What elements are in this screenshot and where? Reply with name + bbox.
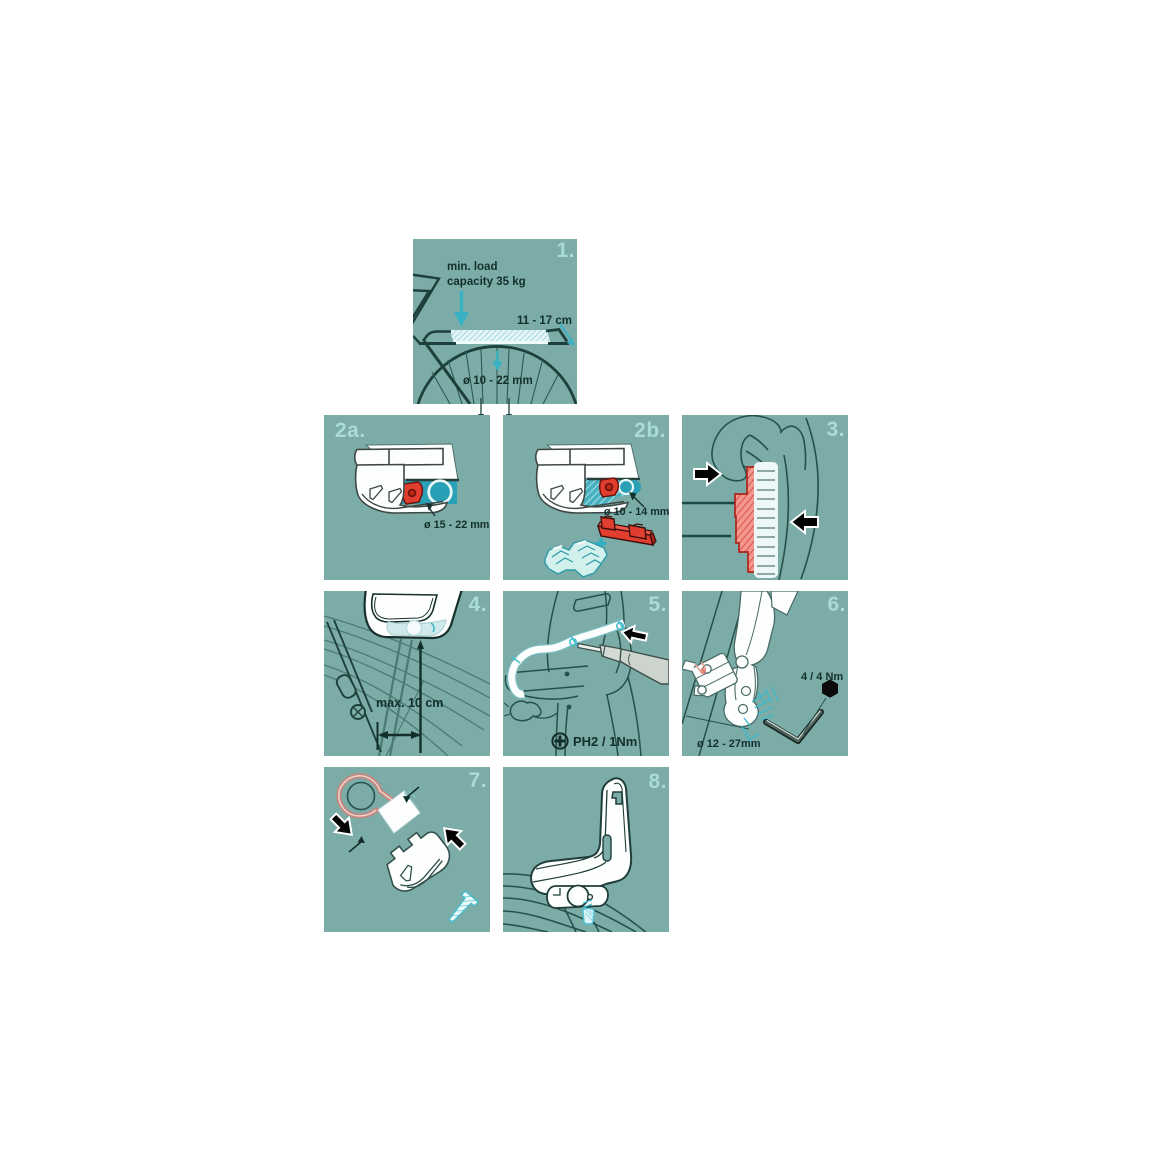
svg-text:3.: 3. [826, 418, 845, 441]
svg-text:5.: 5. [648, 593, 667, 616]
svg-text:PH2 / 1Nm: PH2 / 1Nm [573, 734, 637, 749]
svg-text:2a.: 2a. [335, 419, 366, 442]
svg-text:ø 12 - 27mm: ø 12 - 27mm [697, 738, 761, 750]
svg-text:2b.: 2b. [634, 419, 666, 442]
svg-text:11 - 17 cm: 11 - 17 cm [517, 315, 572, 327]
svg-text:1.: 1. [556, 239, 575, 262]
svg-text:capacity 35 kg: capacity 35 kg [447, 276, 526, 288]
svg-text:ø 10 - 14 mm: ø 10 - 14 mm [604, 506, 669, 518]
svg-text:max. 10 cm: max. 10 cm [376, 696, 443, 710]
svg-text:8.: 8. [648, 770, 667, 793]
svg-text:7.: 7. [468, 769, 487, 792]
svg-text:min. load: min. load [447, 261, 497, 273]
svg-text:6.: 6. [827, 593, 846, 616]
svg-text:ø 10 - 22 mm: ø 10 - 22 mm [463, 375, 533, 387]
svg-text:4.: 4. [468, 593, 487, 616]
svg-text:4 / 4 Nm: 4 / 4 Nm [801, 671, 843, 683]
svg-text:ø 15 - 22 mm: ø 15 - 22 mm [424, 519, 489, 531]
